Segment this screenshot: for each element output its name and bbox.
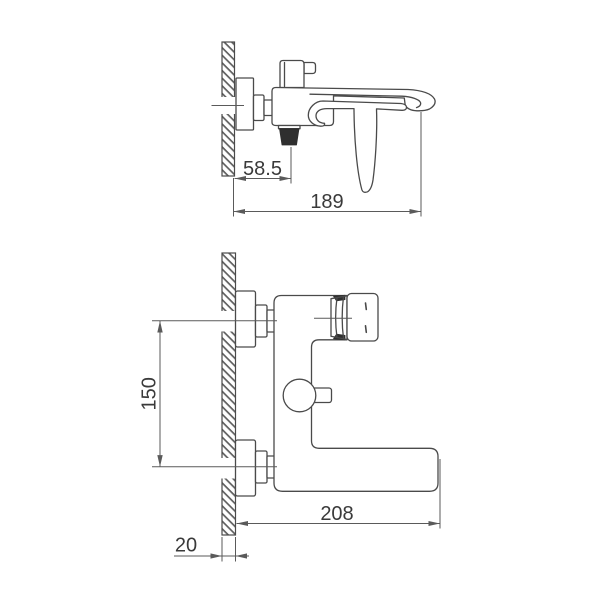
- escutcheon-bottom: [236, 440, 256, 496]
- arrowhead: [236, 553, 248, 558]
- arrowhead: [234, 209, 246, 214]
- arrowhead: [429, 521, 441, 526]
- shower-outlet: [280, 129, 300, 145]
- arrowhead: [410, 209, 422, 214]
- dim-label-port-center-distance: 150: [139, 377, 161, 410]
- dim-label-body-reach: 208: [320, 503, 353, 525]
- arrowhead: [157, 455, 162, 467]
- dim-label-outlet-offset: 58.5: [243, 158, 282, 180]
- diverter: [283, 379, 331, 412]
- faucet-technical-drawing: 58.5 189: [0, 0, 600, 600]
- dimension-wall-thickness: 20: [174, 535, 249, 562]
- front-view: 150 208 20: [139, 253, 441, 562]
- handle-knob: [347, 294, 378, 342]
- connector-outer: [254, 95, 265, 121]
- side-view: 58.5 189: [212, 42, 436, 217]
- arrowhead: [211, 553, 223, 558]
- escutcheon: [236, 78, 254, 130]
- outlet-neck: [279, 126, 301, 129]
- top-knob: [280, 61, 316, 88]
- wall-section: [221, 42, 236, 176]
- arrowhead: [237, 521, 249, 526]
- escutcheon-top: [236, 291, 256, 347]
- dimension-outlet-offset: 58.5: [235, 147, 292, 184]
- arrowhead: [157, 321, 162, 333]
- dim-label-wall-thickness: 20: [175, 535, 197, 557]
- technical-drawing-canvas: 58.5 189: [0, 0, 600, 600]
- top-knob-body: [280, 61, 304, 88]
- dimension-port-center-distance: 150: [139, 321, 163, 467]
- top-knob-step: [304, 63, 316, 74]
- dim-label-spout-reach: 189: [310, 191, 343, 213]
- wall-hatch: [222, 253, 236, 535]
- connector-inner: [264, 100, 273, 116]
- diverter-knob: [283, 379, 316, 412]
- wall-pipe-gap-bottom: [221, 458, 237, 479]
- handle-knob-body: [347, 294, 378, 342]
- extension-lines: [222, 537, 236, 562]
- wall-section: [221, 253, 237, 535]
